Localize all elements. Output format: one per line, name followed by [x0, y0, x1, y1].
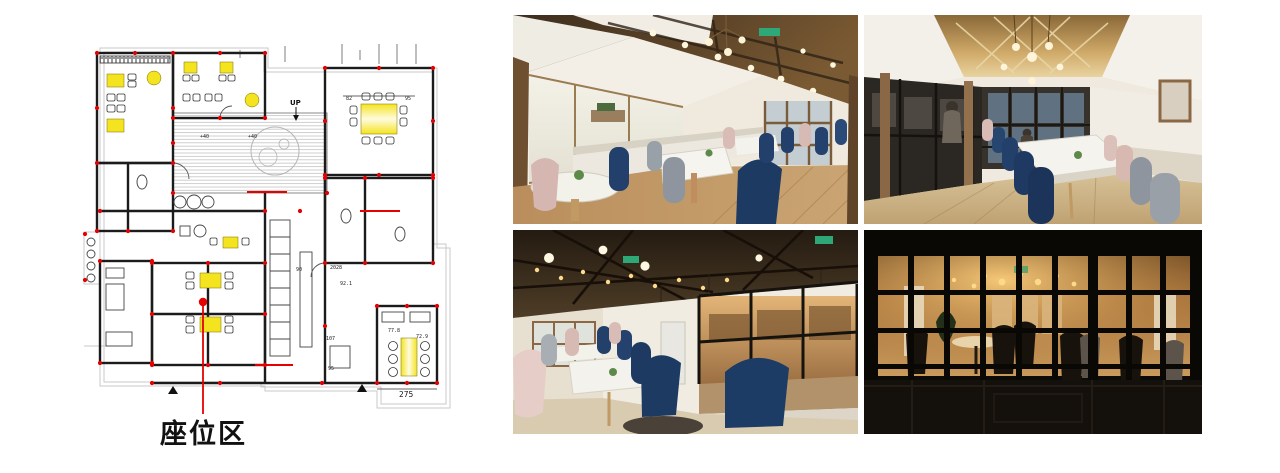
exit-sign-left [623, 256, 639, 263]
photo-night-facade [864, 230, 1202, 434]
dim-95-bottom: 95 [328, 366, 334, 372]
seating-marker-dot [199, 298, 207, 306]
floor-plan: UP +40 +40 [60, 16, 480, 456]
dim-77-8: 77.8 [388, 328, 400, 334]
seating-leader [199, 298, 207, 414]
dim-82: 82 [346, 96, 352, 102]
dim-95-top: 95 [405, 96, 411, 102]
seating-area-label: 座位区 [160, 412, 340, 451]
photo-2-render [864, 15, 1202, 224]
walls [97, 53, 437, 383]
photo-1-render [513, 15, 858, 224]
photo-3-render [513, 230, 858, 434]
highlighted-tables [107, 62, 417, 376]
dim-2028: 2028 [330, 265, 342, 271]
up-label: UP [290, 99, 301, 107]
level-mark-a: +40 [248, 134, 257, 140]
exit-sign [759, 28, 780, 36]
photo-dining-long-hall [864, 15, 1202, 224]
photo-dining-truss-ceiling [513, 230, 858, 434]
dim-275: 275 [399, 390, 414, 399]
dim-92-1: 92.1 [340, 281, 352, 287]
outdoor-deck: UP +40 +40 [173, 99, 327, 193]
dim-107: 107 [326, 336, 335, 342]
dim-90: 90 [296, 267, 302, 273]
level-mark-b: +40 [200, 134, 209, 140]
junction-markers [83, 51, 439, 385]
photo-dining-window-side [513, 15, 858, 224]
presentation-board: UP +40 +40 [0, 0, 1280, 473]
floor-plan-drawing: UP +40 +40 [60, 16, 480, 456]
wall-art-frame [1160, 81, 1190, 121]
exit-sign-right [815, 236, 833, 244]
photo-4-render [864, 230, 1202, 434]
property-outline [84, 48, 450, 408]
dim-72-9: 72.9 [416, 334, 428, 340]
